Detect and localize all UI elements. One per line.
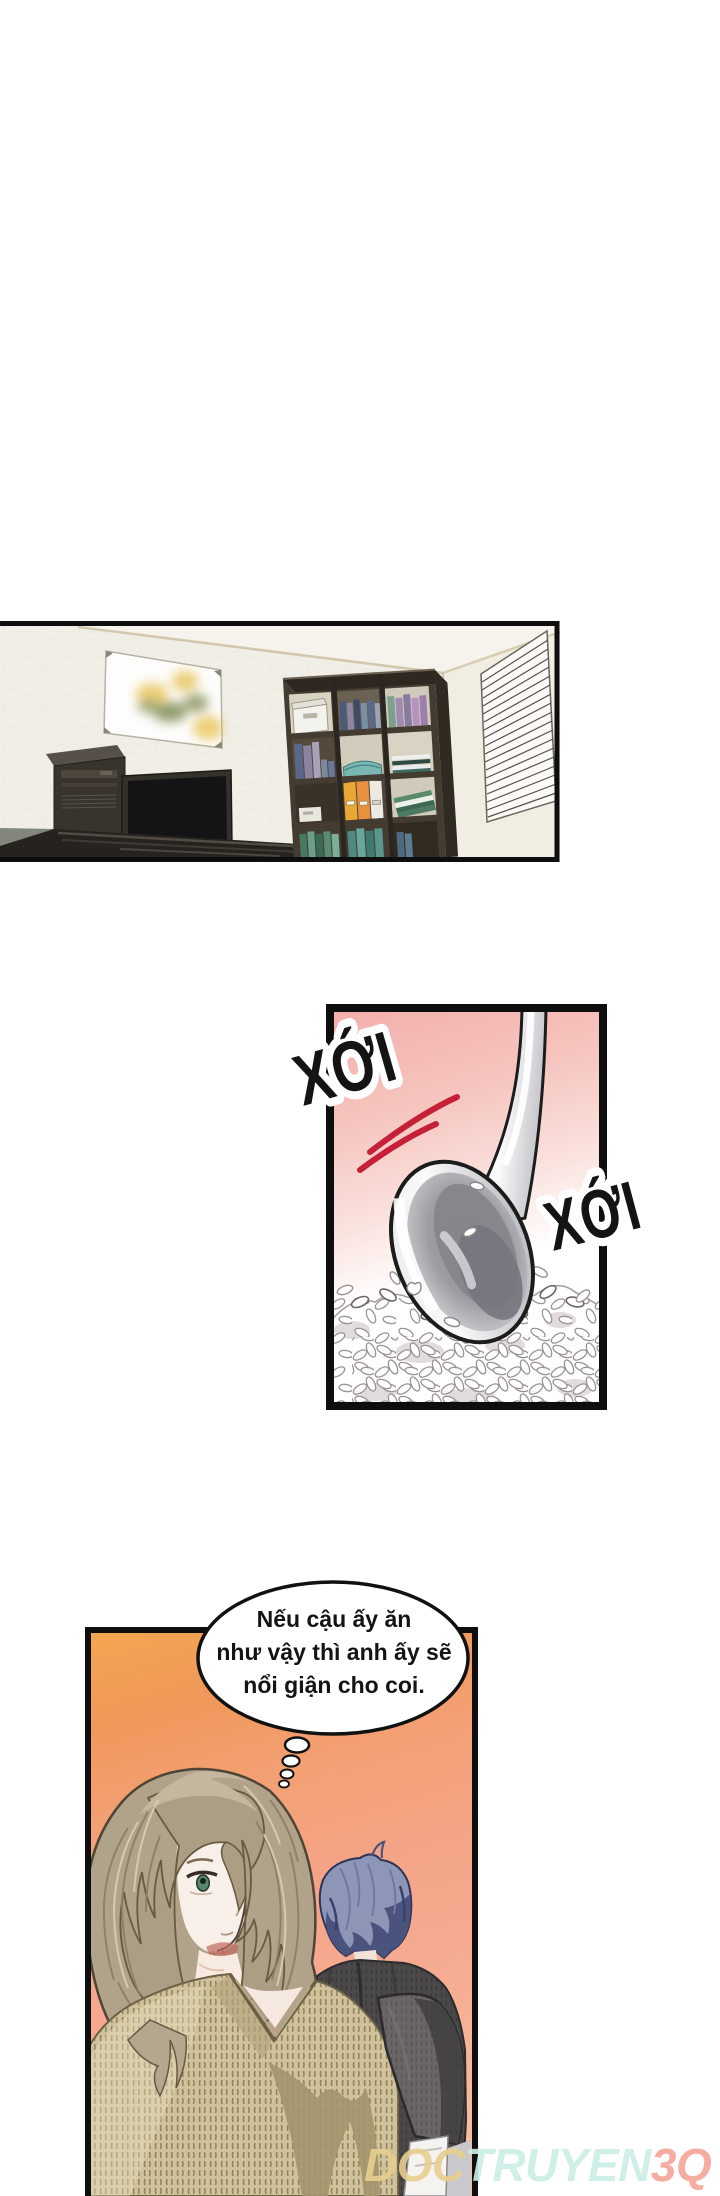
svg-text:nổi giận cho coi.: nổi giận cho coi.	[243, 1672, 424, 1698]
svg-text:như vậy thì anh ấy sẽ: như vậy thì anh ấy sẽ	[216, 1639, 451, 1665]
svg-text:Nếu cậu ấy ăn: Nếu cậu ấy ăn	[257, 1606, 412, 1632]
